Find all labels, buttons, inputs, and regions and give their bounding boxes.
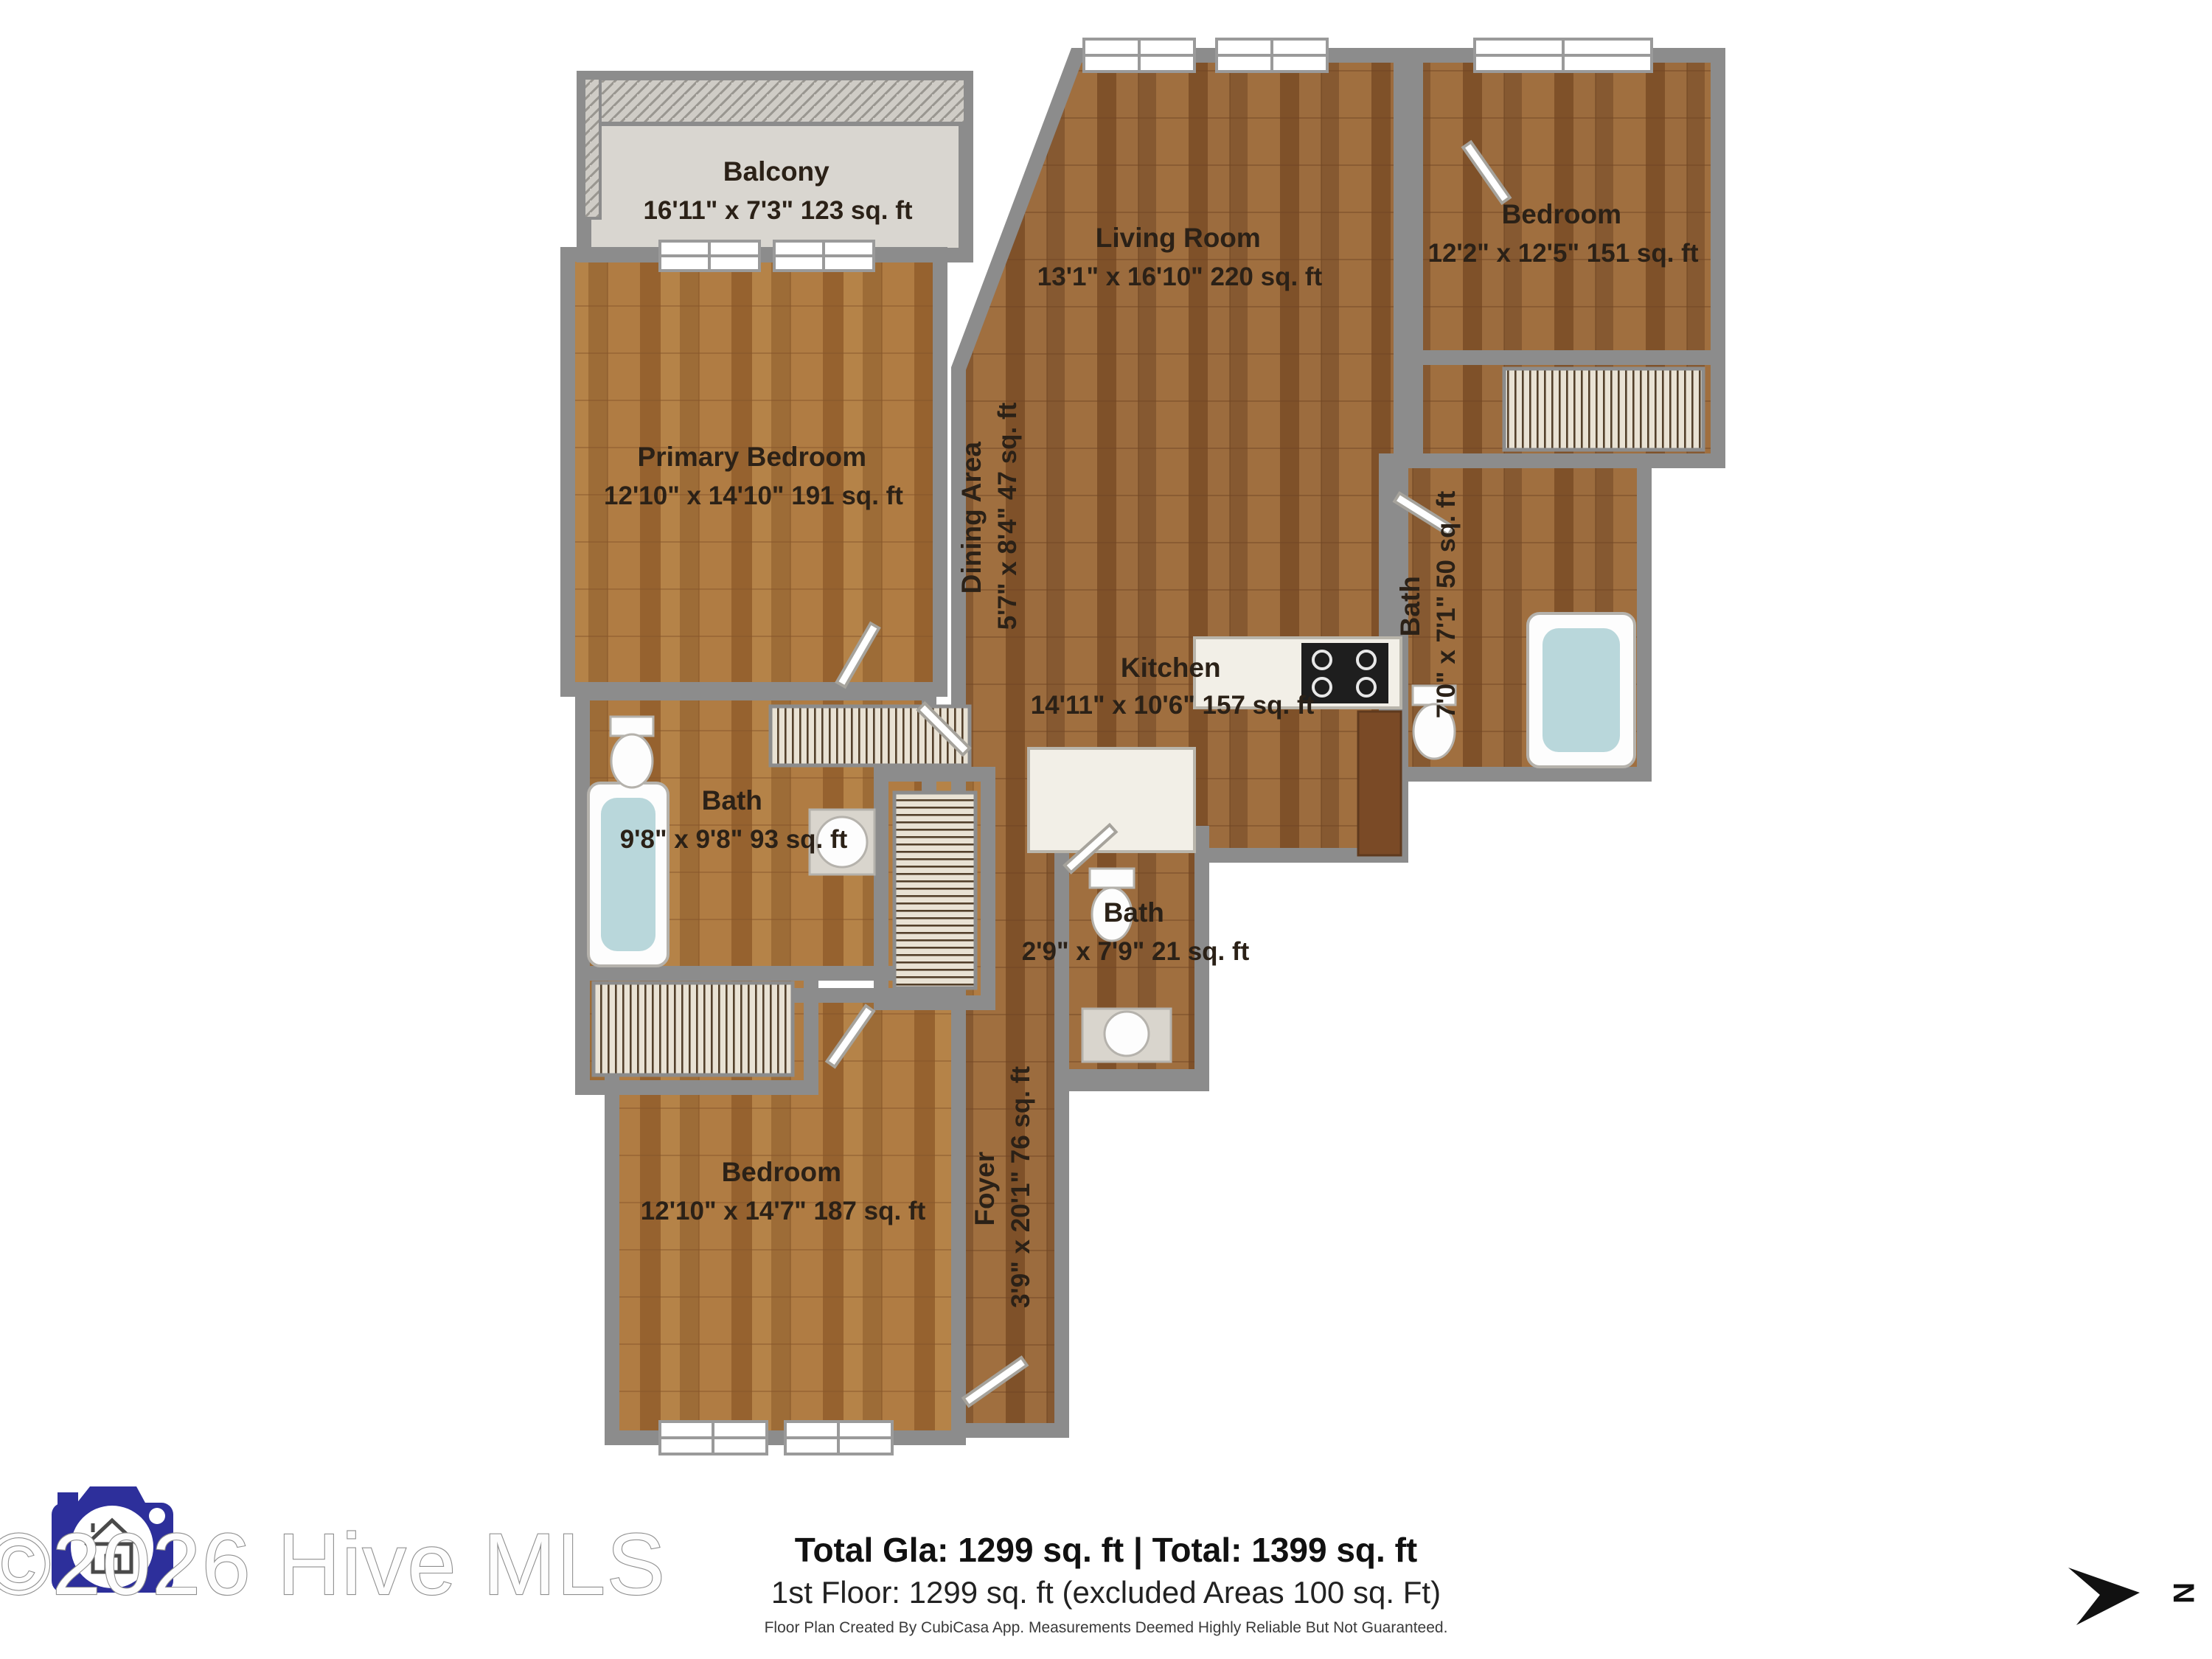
footer: Total Gla: 1299 sq. ft | Total: 1399 sq.… xyxy=(765,1531,1448,1636)
closet-rail-bath-left xyxy=(771,706,970,765)
window-primary-2 xyxy=(774,241,874,271)
closet-rail-bottom-left xyxy=(594,983,793,1075)
closet-rail-right xyxy=(1504,369,1703,450)
window-bedroom-bottom-2 xyxy=(785,1422,892,1454)
closet-rail-vertical xyxy=(894,793,975,988)
kitchen-cabinet-right xyxy=(1358,712,1401,855)
bathtub-left xyxy=(588,783,668,966)
sink-middle xyxy=(1082,1009,1171,1062)
window-living-1 xyxy=(1084,39,1194,72)
north-arrow-icon xyxy=(2068,1568,2140,1625)
floor-plan-svg: Balcony 16'11" x 7'3" 123 sq. ft Living … xyxy=(0,0,2212,1659)
window-primary-1 xyxy=(660,241,759,271)
footer-disclaimer: Floor Plan Created By CubiCasa App. Meas… xyxy=(765,1619,1448,1636)
north-arrow: N xyxy=(2068,1568,2199,1625)
room-primary-bedroom xyxy=(568,254,940,689)
window-bedroom-bottom-1 xyxy=(660,1422,767,1454)
footer-totals: Total Gla: 1299 sq. ft | Total: 1399 sq.… xyxy=(795,1531,1417,1569)
bathtub-right xyxy=(1528,613,1635,767)
window-bedroom-right xyxy=(1475,39,1652,72)
window-living-2 xyxy=(1217,39,1327,72)
footer-first-floor: 1st Floor: 1299 sq. ft (excluded Areas 1… xyxy=(771,1575,1441,1610)
north-arrow-label: N xyxy=(2167,1582,2199,1604)
stove-icon xyxy=(1301,643,1388,703)
watermark-text: ©2026 Hive MLS xyxy=(0,1516,667,1613)
toilet-left xyxy=(611,717,653,787)
